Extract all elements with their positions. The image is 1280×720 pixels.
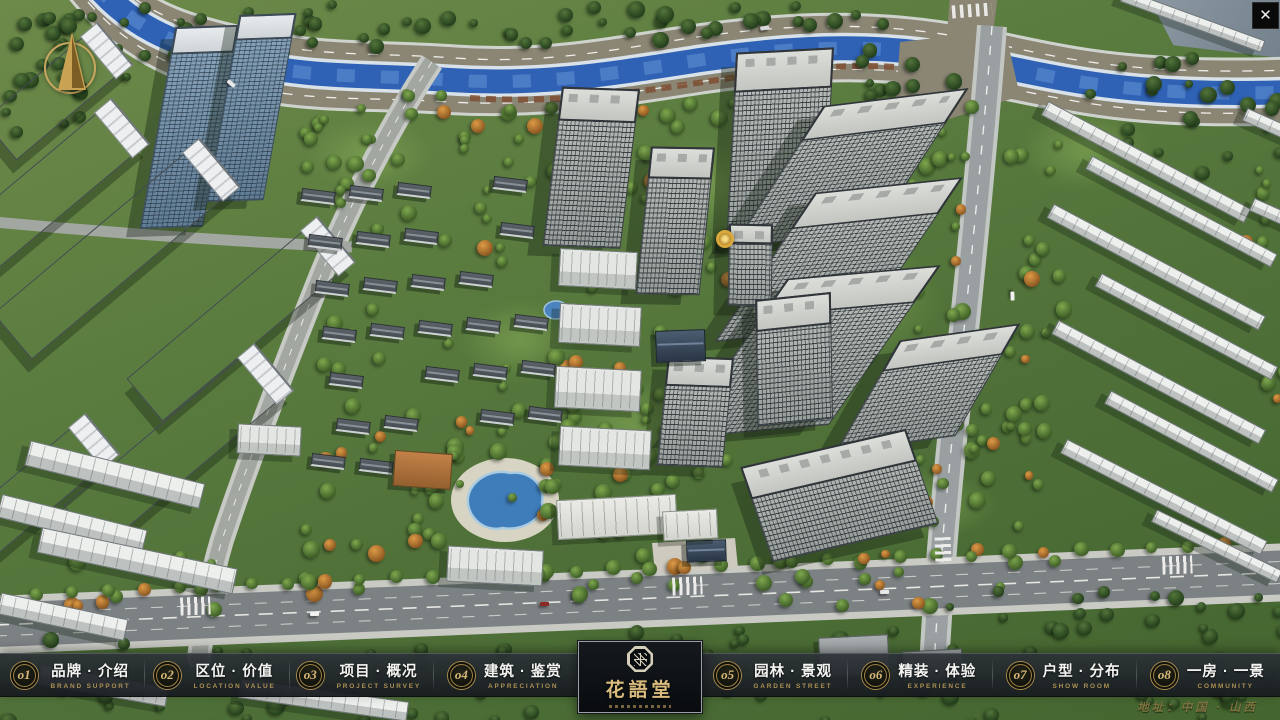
presentation-stage: ✕ o1品牌 · 介绍BRAND SUPPORTo2区位 · 价值LOCATIO… xyxy=(0,0,1280,720)
nav-label-zh: 项目 · 概况 xyxy=(340,660,418,681)
item-number-badge: o3 xyxy=(297,662,324,689)
item-number-badge: o5 xyxy=(714,662,741,689)
car xyxy=(540,602,549,606)
mid-rise-building xyxy=(558,303,642,347)
row-building xyxy=(1242,108,1280,145)
courtyard-house xyxy=(397,182,432,199)
courtyard-house xyxy=(359,458,394,475)
row-building xyxy=(0,592,129,641)
courtyard-house xyxy=(404,228,439,245)
project-title: 花語堂 xyxy=(605,675,674,702)
courtyard-house xyxy=(528,406,563,423)
mid-rise-building xyxy=(236,423,301,456)
courtyard-house xyxy=(315,280,350,297)
nav-label-en: BRAND SUPPORT xyxy=(50,683,130,689)
crosswalk xyxy=(672,576,703,595)
crosswalk xyxy=(180,596,211,615)
courtyard-house xyxy=(493,176,528,193)
courtyard-house xyxy=(466,317,501,334)
nav-label-zh: 园林 · 景观 xyxy=(754,660,832,681)
nav-group-right: o5园林 · 景观GARDEN STREETo6精装 · 体验EXPERIENC… xyxy=(703,654,1280,696)
close-button[interactable]: ✕ xyxy=(1252,2,1279,29)
courtyard-house xyxy=(384,415,419,432)
nav-label-zh: 建筑 · 鉴赏 xyxy=(484,660,562,681)
project-address: 地址：中国 · 山西 xyxy=(1137,699,1258,715)
nav-label-zh: 一房 · 一景 xyxy=(1187,660,1265,681)
project-subtitle-line xyxy=(609,705,671,708)
nav-item-01[interactable]: o1品牌 · 介绍BRAND SUPPORT xyxy=(0,654,144,696)
item-number-badge: o1 xyxy=(11,662,38,689)
nav-item-04[interactable]: o4建筑 · 鉴赏APPRECIATION xyxy=(433,654,577,696)
commercial-strip xyxy=(662,509,718,542)
nav-label-en: EXPERIENCE xyxy=(907,683,967,689)
car xyxy=(760,25,769,30)
nav-label-zh: 品牌 · 介绍 xyxy=(51,660,129,681)
row-building xyxy=(1249,198,1280,235)
courtyard-house xyxy=(473,363,508,380)
residential-tower xyxy=(635,146,715,295)
nav-group-left: o1品牌 · 介绍BRAND SUPPORTo2区位 · 价值LOCATION … xyxy=(0,654,577,696)
nav-label-en: LOCATION VALUE xyxy=(193,683,275,689)
courtyard-house xyxy=(411,274,446,291)
mid-rise-building xyxy=(558,426,652,471)
courtyard-house xyxy=(480,409,515,426)
commercial-strip xyxy=(556,494,678,540)
courtyard-house xyxy=(336,418,371,435)
residential-tower xyxy=(755,292,833,426)
item-number-badge: o6 xyxy=(862,662,889,689)
nav-label-en: SHOW ROOM xyxy=(1052,683,1110,689)
nav-item-06[interactable]: o6精装 · 体验EXPERIENCE xyxy=(847,654,991,696)
seal-icon xyxy=(627,646,653,672)
project-logo-panel: 花語堂 xyxy=(578,641,702,713)
item-number-badge: o4 xyxy=(448,662,475,689)
courtyard-house xyxy=(322,326,357,343)
nav-label-zh: 区位 · 价值 xyxy=(195,660,273,681)
traditional-pavilion xyxy=(655,329,706,363)
row-building xyxy=(1120,0,1265,53)
nav-item-02[interactable]: o2区位 · 价值LOCATION VALUE xyxy=(144,654,288,696)
courtyard-house xyxy=(418,320,453,337)
clubhouse-orange xyxy=(393,450,453,490)
courtyard-house xyxy=(459,271,494,288)
residential-tower xyxy=(656,356,733,468)
mid-rise-building xyxy=(554,366,642,412)
courtyard-house xyxy=(514,314,549,331)
courtyard-house xyxy=(521,360,556,377)
nav-item-05[interactable]: o5园林 · 景观GARDEN STREET xyxy=(703,654,847,696)
courtyard-house xyxy=(349,185,384,202)
nav-label-zh: 精装 · 体验 xyxy=(898,660,976,681)
nav-label-en: COMMUNITY xyxy=(1198,683,1254,689)
entrance-gate xyxy=(686,539,727,562)
courtyard-house xyxy=(329,372,364,389)
building-layer xyxy=(0,0,1280,720)
courtyard-house xyxy=(370,323,405,340)
courtyard-house xyxy=(500,222,535,239)
mid-rise-building xyxy=(558,248,638,290)
nav-label-en: PROJECT SURVEY xyxy=(336,683,420,689)
crosswalk xyxy=(1162,555,1193,574)
item-number-badge: o2 xyxy=(154,662,181,689)
item-number-badge: o8 xyxy=(1151,662,1178,689)
car xyxy=(880,590,889,594)
courtyard-house xyxy=(311,453,346,470)
bottom-navigation: o1品牌 · 介绍BRAND SUPPORTo2区位 · 价值LOCATION … xyxy=(0,653,1280,697)
mid-rise-building xyxy=(446,545,544,586)
gold-landmark-sculpture xyxy=(716,230,734,248)
crosswalk xyxy=(935,537,952,564)
car xyxy=(1010,292,1014,301)
courtyard-house xyxy=(425,366,460,383)
residential-tower xyxy=(740,429,938,562)
nav-item-07[interactable]: o7户型 · 分布SHOW ROOM xyxy=(992,654,1136,696)
courtyard-house xyxy=(356,231,391,248)
nav-item-03[interactable]: o3项目 · 概况PROJECT SURVEY xyxy=(289,654,433,696)
row-building xyxy=(1041,101,1252,223)
courtyard-house xyxy=(363,277,398,294)
residential-tower xyxy=(542,87,640,249)
nav-label-en: APPRECIATION xyxy=(488,683,558,689)
item-number-badge: o7 xyxy=(1007,662,1034,689)
residential-tower xyxy=(728,224,773,307)
car xyxy=(310,612,319,616)
courtyard-house xyxy=(301,188,336,205)
nav-item-08[interactable]: o8一房 · 一景COMMUNITY xyxy=(1136,654,1280,696)
nav-label-zh: 户型 · 分布 xyxy=(1043,660,1121,681)
close-icon: ✕ xyxy=(1259,8,1272,23)
nav-label-en: GARDEN STREET xyxy=(754,683,833,689)
compass-icon xyxy=(42,32,102,98)
